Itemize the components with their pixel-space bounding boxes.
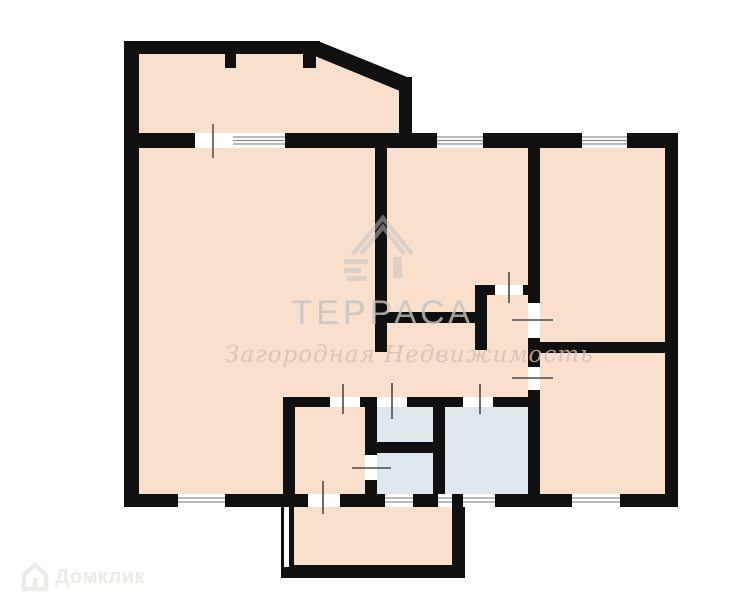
platform-house-icon (20, 562, 50, 592)
platform-logo-label: Домклик (55, 562, 145, 592)
brand-watermark-title: ТЕРРАСА (283, 296, 483, 330)
bathroom-fill (445, 407, 528, 494)
bottom-balcony-fill (288, 500, 458, 570)
brand-watermark-subtitle: Загородная Недвижимость (225, 341, 525, 369)
platform-logo: Домклик (20, 561, 145, 593)
shower-room-fill (377, 453, 433, 494)
wc-room-fill (377, 407, 433, 442)
floor-plan-page: ТЕРРАСА Загородная Недвижимость Домклик (0, 0, 755, 601)
